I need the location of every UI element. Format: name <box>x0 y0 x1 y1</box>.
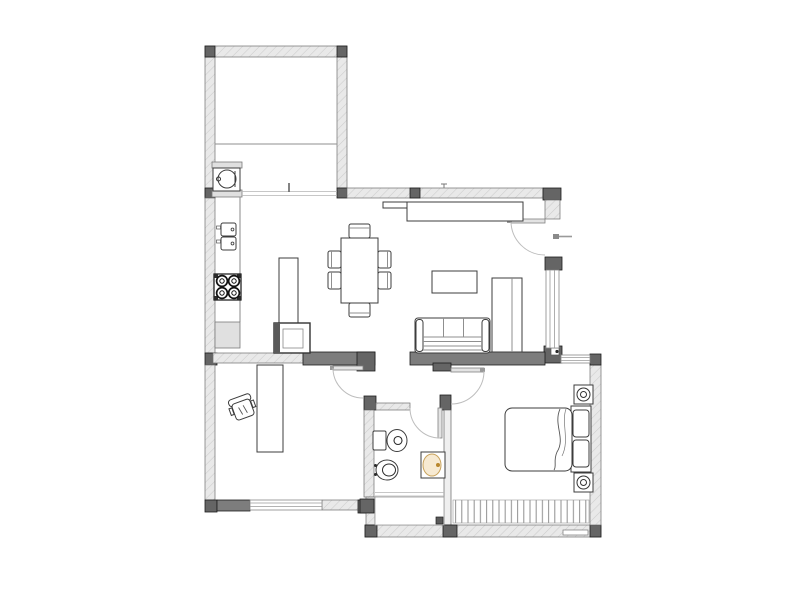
living-room <box>383 202 523 353</box>
living-bottom-wall <box>410 352 545 365</box>
corner-post <box>543 188 561 200</box>
bathroom-door <box>410 408 442 438</box>
living-east-window <box>546 270 559 348</box>
bidet <box>374 460 398 480</box>
faucet <box>217 226 221 229</box>
utility-room-fixtures <box>212 162 242 191</box>
dining-table <box>341 238 378 303</box>
bedroom-north-window <box>561 355 590 363</box>
office-west-wall <box>205 365 215 500</box>
nightstand-north <box>574 385 593 404</box>
utility-top-wall <box>205 46 347 57</box>
door-stub <box>433 363 451 371</box>
bathtub <box>375 493 444 526</box>
corner-post <box>205 500 217 512</box>
dining-chair-west-1 <box>328 251 341 268</box>
office-chair <box>226 392 258 422</box>
double-bed <box>505 406 591 472</box>
right-wall-upper <box>545 200 560 219</box>
floor-plan-drawing <box>0 0 800 600</box>
tub-faucet <box>436 517 443 524</box>
dining-chair-east-2 <box>378 272 391 289</box>
kitchen <box>214 197 310 353</box>
office-bottom-wall-light <box>322 500 360 510</box>
washbasin <box>421 452 445 478</box>
coffee-table <box>432 271 477 293</box>
corner-post <box>337 188 347 198</box>
divider-wall-light <box>213 353 303 363</box>
utility-right-wall <box>337 57 347 188</box>
sofa-armrest-left <box>416 320 423 352</box>
closet-striped-band <box>453 500 589 523</box>
living-top-wall <box>347 188 543 198</box>
bathroom-top-wall <box>376 403 410 410</box>
wall-marker-tick <box>441 184 447 188</box>
entry-jamb-block <box>545 257 562 270</box>
flue-column <box>279 258 298 323</box>
base-cabinet <box>215 322 240 348</box>
dining-chair-south <box>349 303 370 317</box>
kitchen-sink <box>217 223 237 250</box>
fireplace-unit <box>274 258 310 353</box>
utility-counter-edge <box>212 162 242 168</box>
pillow <box>573 440 589 467</box>
dining-set <box>328 224 391 317</box>
fireplace-side <box>274 323 280 353</box>
bathroom <box>373 430 445 526</box>
basin-faucet-dot <box>436 463 440 467</box>
bathroom-west-wall <box>364 410 374 497</box>
wall-notch <box>563 530 588 535</box>
dining-chair-north <box>349 224 370 238</box>
wall-shelf <box>383 202 407 208</box>
corner-post <box>365 525 377 537</box>
bedroom <box>453 385 593 523</box>
corner-post <box>337 46 347 57</box>
office <box>226 365 283 452</box>
corner-post <box>360 499 374 513</box>
corner-post <box>443 525 457 537</box>
faucet <box>217 240 221 243</box>
wall-pier <box>410 188 420 198</box>
sofa <box>415 318 490 353</box>
office-south-window <box>250 500 322 510</box>
floor-plan-canvas <box>0 0 800 600</box>
dining-chair-east-1 <box>378 251 391 268</box>
junction-dot <box>555 350 558 353</box>
stove <box>214 274 241 300</box>
mattress <box>505 408 572 471</box>
nightstand-south <box>574 473 593 492</box>
toilet <box>373 430 407 452</box>
sofa-armrest-right <box>482 320 489 352</box>
tall-cabinet <box>492 278 522 352</box>
bedroom-door <box>451 368 485 404</box>
corner-post <box>205 46 215 57</box>
windows <box>250 270 590 510</box>
corner-post <box>590 525 601 537</box>
sideboard <box>407 202 523 221</box>
corner-post <box>590 354 601 365</box>
desk <box>257 365 283 452</box>
bathroom-nw-block <box>364 396 376 410</box>
entry-door <box>507 219 572 255</box>
dining-chair-west-2 <box>328 272 341 289</box>
office-bottom-wall-dark <box>217 500 250 511</box>
pillow <box>573 410 589 437</box>
exterior-marker <box>553 234 559 239</box>
